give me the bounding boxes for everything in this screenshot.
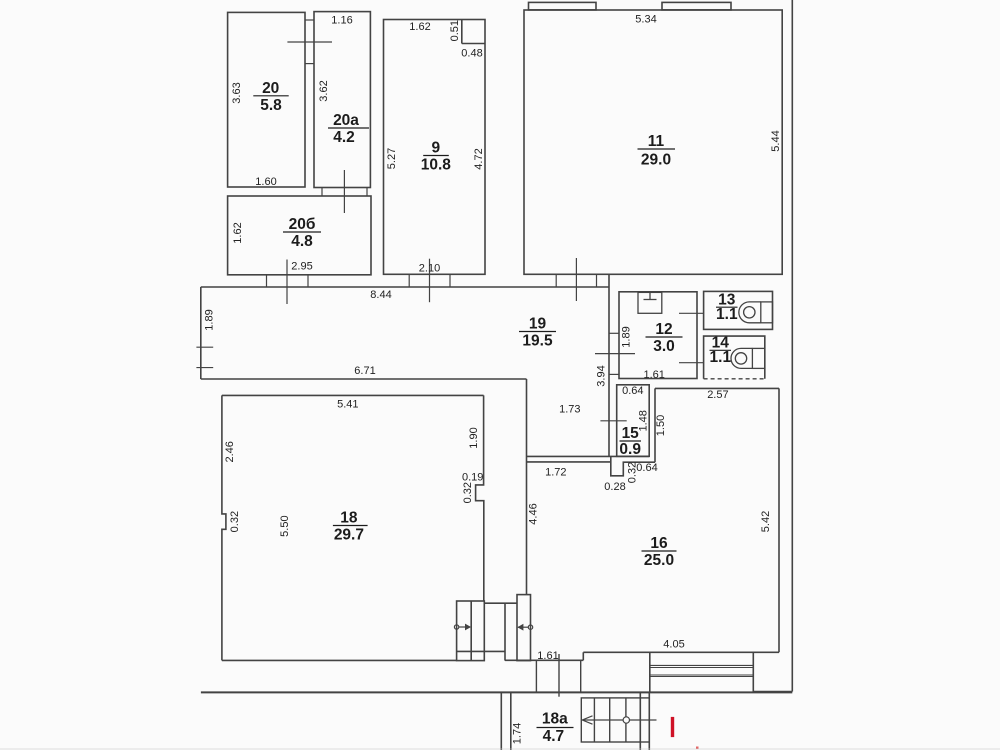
- svg-text:5.27: 5.27: [386, 148, 398, 169]
- svg-text:0.51: 0.51: [449, 20, 461, 41]
- svg-text:1.72: 1.72: [545, 467, 566, 479]
- svg-text:0.48: 0.48: [461, 47, 482, 59]
- svg-text:1.50: 1.50: [655, 415, 667, 436]
- svg-text:11: 11: [648, 133, 665, 150]
- svg-text:1.61: 1.61: [537, 650, 558, 662]
- svg-text:1.60: 1.60: [255, 176, 276, 188]
- svg-text:0.19: 0.19: [462, 472, 483, 484]
- svg-text:0.28: 0.28: [604, 481, 625, 493]
- svg-text:12: 12: [655, 321, 672, 338]
- svg-text:2.10: 2.10: [419, 263, 440, 275]
- svg-text:0.64: 0.64: [636, 462, 657, 474]
- svg-text:4.05: 4.05: [663, 638, 684, 650]
- svg-text:20б: 20б: [289, 216, 316, 233]
- svg-text:18: 18: [340, 510, 358, 527]
- svg-text:1.89: 1.89: [621, 326, 633, 347]
- svg-text:1.1: 1.1: [716, 306, 738, 323]
- svg-text:0.32: 0.32: [229, 511, 241, 532]
- svg-text:3.0: 3.0: [653, 338, 675, 355]
- svg-text:4.2: 4.2: [333, 129, 355, 146]
- svg-text:29.7: 29.7: [334, 527, 364, 544]
- svg-text:16: 16: [650, 535, 668, 552]
- svg-text:4.46: 4.46: [527, 503, 539, 524]
- svg-text:9: 9: [431, 140, 440, 157]
- svg-text:0.32: 0.32: [626, 462, 638, 483]
- svg-text:1.62: 1.62: [232, 222, 244, 243]
- svg-text:5.8: 5.8: [260, 97, 282, 114]
- svg-text:0.9: 0.9: [619, 441, 641, 458]
- svg-text:19.5: 19.5: [522, 333, 553, 350]
- svg-text:5.34: 5.34: [635, 14, 656, 26]
- svg-text:2.57: 2.57: [707, 389, 728, 401]
- svg-text:3.62: 3.62: [318, 80, 330, 101]
- svg-text:6.71: 6.71: [354, 365, 375, 377]
- svg-text:1.74: 1.74: [511, 723, 523, 744]
- svg-text:5.50: 5.50: [279, 515, 291, 536]
- svg-text:2.46: 2.46: [224, 441, 236, 462]
- svg-text:20: 20: [262, 80, 279, 97]
- svg-text:1.90: 1.90: [468, 427, 480, 448]
- svg-text:0.32: 0.32: [462, 482, 474, 503]
- svg-text:25.0: 25.0: [644, 552, 674, 569]
- svg-text:5.41: 5.41: [337, 399, 358, 411]
- svg-text:20a: 20a: [333, 112, 359, 129]
- svg-text:5.42: 5.42: [760, 511, 772, 532]
- svg-text:8.44: 8.44: [370, 289, 391, 301]
- svg-text:0.64: 0.64: [622, 385, 643, 397]
- svg-text:2.95: 2.95: [291, 261, 312, 273]
- svg-text:29.0: 29.0: [641, 152, 671, 169]
- svg-text:18a: 18a: [542, 711, 568, 728]
- svg-text:4.8: 4.8: [291, 233, 313, 250]
- svg-text:1.62: 1.62: [409, 21, 430, 33]
- svg-text:1.73: 1.73: [559, 403, 580, 415]
- svg-text:19: 19: [529, 316, 547, 333]
- svg-text:1.61: 1.61: [643, 369, 664, 381]
- svg-text:4.7: 4.7: [543, 728, 565, 745]
- svg-text:10.8: 10.8: [421, 157, 452, 174]
- svg-text:1.48: 1.48: [637, 410, 649, 431]
- svg-text:3.94: 3.94: [596, 365, 608, 386]
- svg-text:3.63: 3.63: [231, 82, 243, 103]
- svg-text:1.1: 1.1: [710, 349, 732, 366]
- svg-text:1.89: 1.89: [203, 309, 215, 330]
- svg-text:4.72: 4.72: [473, 148, 485, 169]
- svg-text:1.16: 1.16: [331, 14, 352, 26]
- svg-text:5.44: 5.44: [770, 130, 782, 151]
